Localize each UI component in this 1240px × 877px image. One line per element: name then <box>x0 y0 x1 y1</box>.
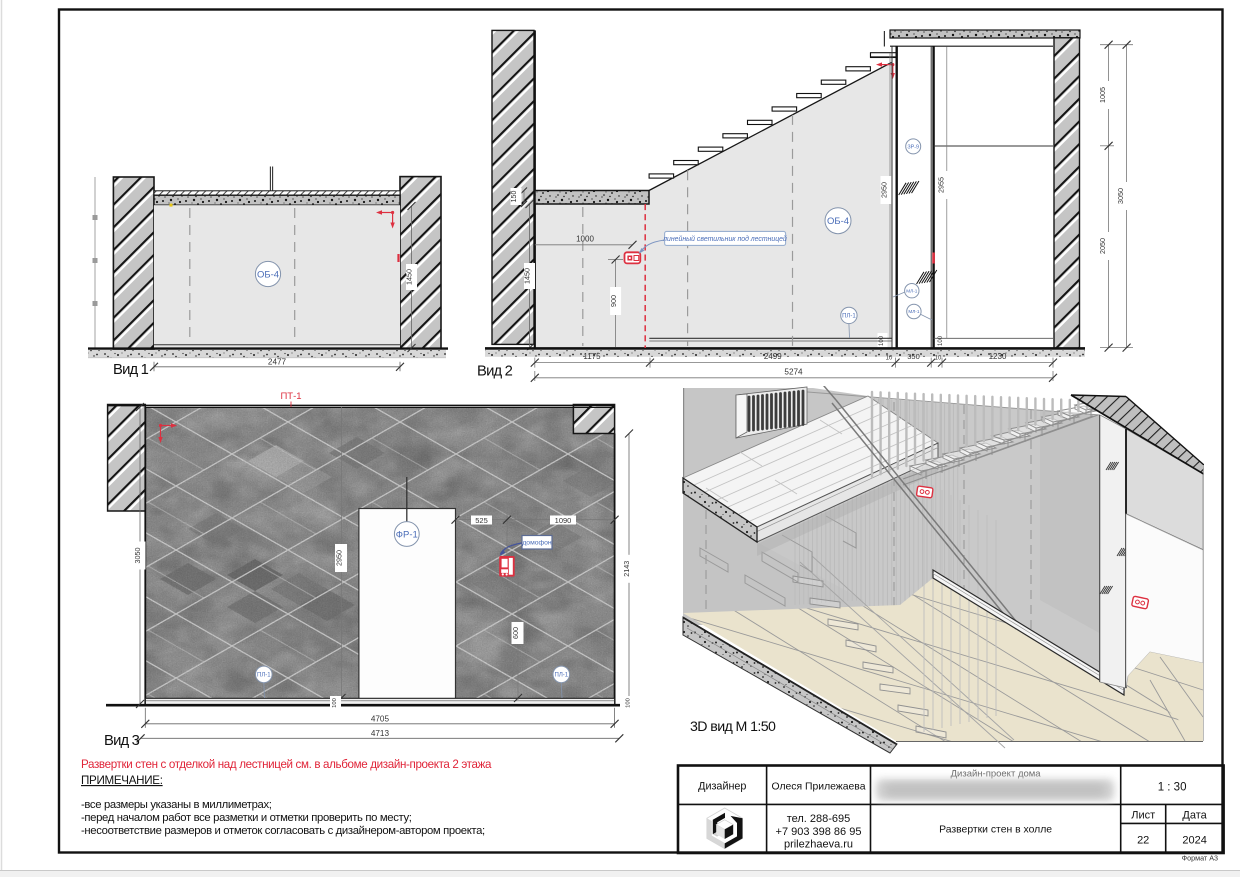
svg-text:1090: 1090 <box>555 516 572 525</box>
svg-text:150: 150 <box>511 191 518 203</box>
svg-text:ОБ-4: ОБ-4 <box>257 269 279 280</box>
svg-text:1450: 1450 <box>405 269 414 285</box>
svg-text:Развертки стен в холле: Развертки стен в холле <box>939 825 1052 836</box>
svg-text:10: 10 <box>886 355 893 361</box>
svg-text:525: 525 <box>475 516 488 525</box>
svg-text:100: 100 <box>332 698 338 708</box>
svg-text:домофон: домофон <box>522 540 552 547</box>
svg-text:2143: 2143 <box>622 561 631 577</box>
svg-text:350: 350 <box>907 352 920 361</box>
svg-text:Лист: Лист <box>1131 810 1155 822</box>
svg-text:2050: 2050 <box>1098 238 1107 254</box>
svg-text:4705: 4705 <box>371 714 390 723</box>
svg-text:Вид 1: Вид 1 <box>113 362 149 378</box>
svg-text:600: 600 <box>511 627 520 639</box>
svg-text:1 : 30: 1 : 30 <box>1158 782 1187 794</box>
svg-text:900: 900 <box>609 295 618 307</box>
svg-text:ПЛ-1: ПЛ-1 <box>842 314 856 320</box>
svg-text:тел. 288-695: тел. 288-695 <box>787 813 851 825</box>
svg-text:Дата: Дата <box>1182 810 1207 822</box>
svg-text:10: 10 <box>935 355 942 361</box>
svg-text:Формат А3: Формат А3 <box>1182 854 1218 863</box>
svg-text:3050: 3050 <box>1116 188 1125 204</box>
svg-text:ФР-1: ФР-1 <box>396 529 418 540</box>
svg-text:1000: 1000 <box>576 234 594 243</box>
svg-text:ПТ-1: ПТ-1 <box>280 391 301 402</box>
svg-text:МЛ-1: МЛ-1 <box>906 288 918 293</box>
svg-text:ПЛ-1: ПЛ-1 <box>555 673 569 679</box>
svg-text:Олеся Прилежаева: Олеся Прилежаева <box>772 782 866 793</box>
svg-text:-перед началом работ все разме: -перед началом работ все разметки и отме… <box>81 812 412 824</box>
svg-text:2477: 2477 <box>268 357 287 366</box>
svg-text:Дизайнер: Дизайнер <box>698 781 746 793</box>
svg-text:Вид 2: Вид 2 <box>477 364 513 380</box>
svg-text:22: 22 <box>1137 835 1149 847</box>
svg-text:ПРИМЕЧАНИЕ:: ПРИМЕЧАНИЕ: <box>81 774 163 787</box>
svg-text:-все размеры указаны в миллиме: -все размеры указаны в миллиметрах; <box>81 799 272 811</box>
svg-text:4713: 4713 <box>371 729 390 738</box>
svg-text:2950: 2950 <box>880 182 889 198</box>
svg-text:ЗР-9: ЗР-9 <box>907 144 919 150</box>
svg-text:2024: 2024 <box>1182 835 1206 847</box>
svg-text:1005: 1005 <box>1098 87 1107 103</box>
svg-text:2955: 2955 <box>936 177 945 193</box>
svg-text:100: 100 <box>938 335 944 346</box>
svg-text:1175: 1175 <box>583 352 601 361</box>
svg-text:+7 903 398 86 95: +7 903 398 86 95 <box>776 826 862 838</box>
svg-text:Вид 3: Вид 3 <box>104 733 140 749</box>
svg-text:2499: 2499 <box>764 352 782 361</box>
svg-text:-несоответствие размеров и отм: -несоответствие размеров и отметок согла… <box>81 825 485 837</box>
svg-text:prilezhaeva.ru: prilezhaeva.ru <box>784 839 853 851</box>
svg-text:2950: 2950 <box>335 550 344 566</box>
svg-text:100: 100 <box>626 698 632 708</box>
svg-text:1230: 1230 <box>989 352 1007 361</box>
svg-text:МЛ-1: МЛ-1 <box>908 309 920 314</box>
svg-text:5274: 5274 <box>784 367 803 376</box>
svg-text:1450: 1450 <box>523 268 532 284</box>
svg-text:3050: 3050 <box>133 548 142 564</box>
svg-text:3D вид М 1:50: 3D вид М 1:50 <box>690 719 776 735</box>
svg-text:Дизайн-проект дома: Дизайн-проект дома <box>951 769 1042 780</box>
svg-text:Развертки стен с отделкой над: Развертки стен с отделкой над лестницей … <box>81 758 492 771</box>
svg-text:ПЛ-1: ПЛ-1 <box>257 673 271 679</box>
svg-text:линейный светильник под лестни: линейный светильник под лестницей <box>662 235 787 243</box>
svg-text:ОБ-4: ОБ-4 <box>827 216 849 227</box>
